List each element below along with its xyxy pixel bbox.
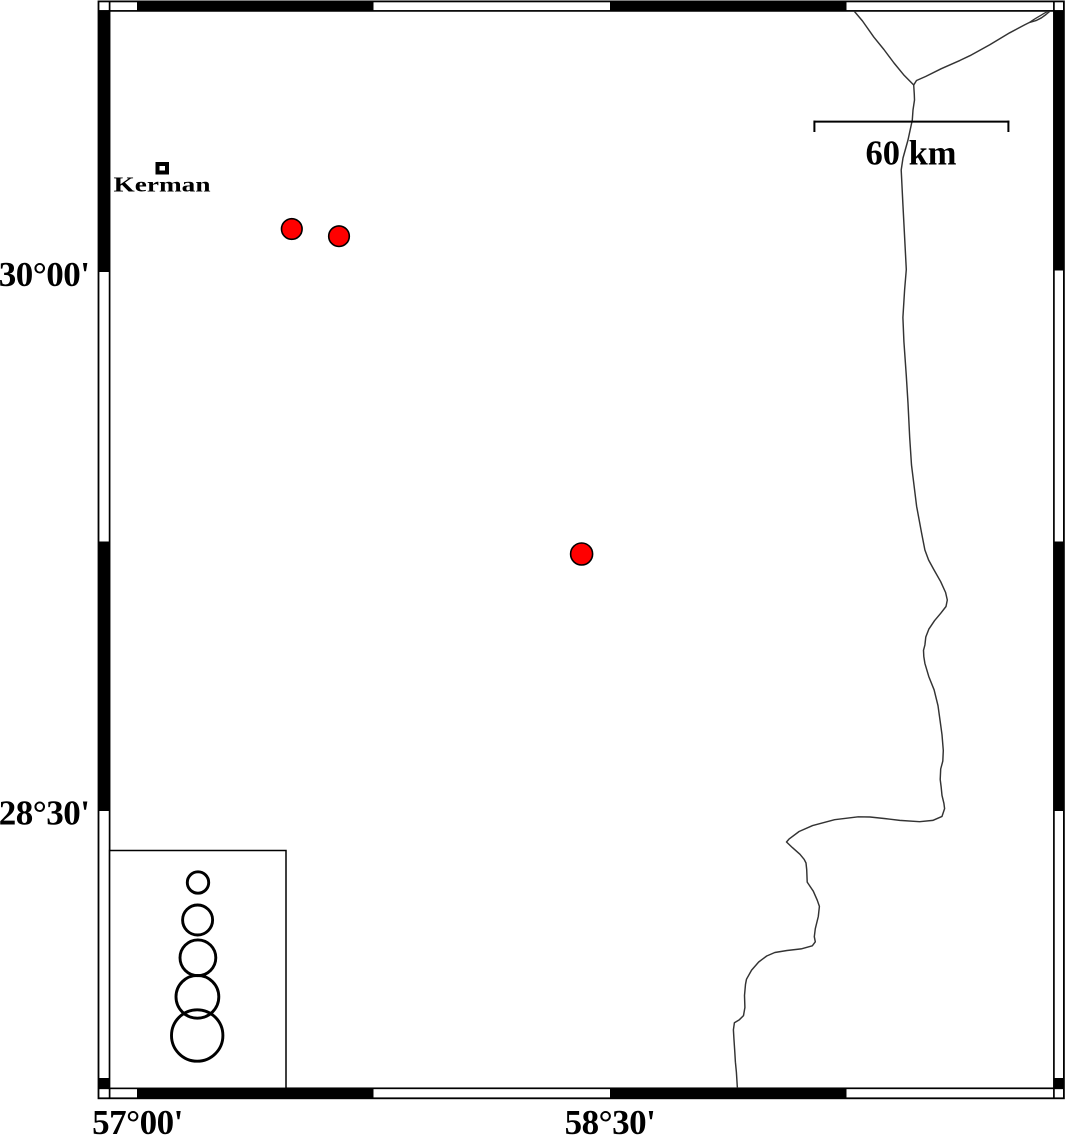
svg-text:58°30': 58°30' xyxy=(565,1103,656,1137)
svg-text:30°00': 30°00' xyxy=(0,255,90,294)
svg-text:60 km: 60 km xyxy=(865,135,956,173)
svg-text:Kerman: Kerman xyxy=(113,173,211,196)
svg-text:28°30': 28°30' xyxy=(0,794,90,833)
svg-text:57°00': 57°00' xyxy=(92,1103,183,1137)
